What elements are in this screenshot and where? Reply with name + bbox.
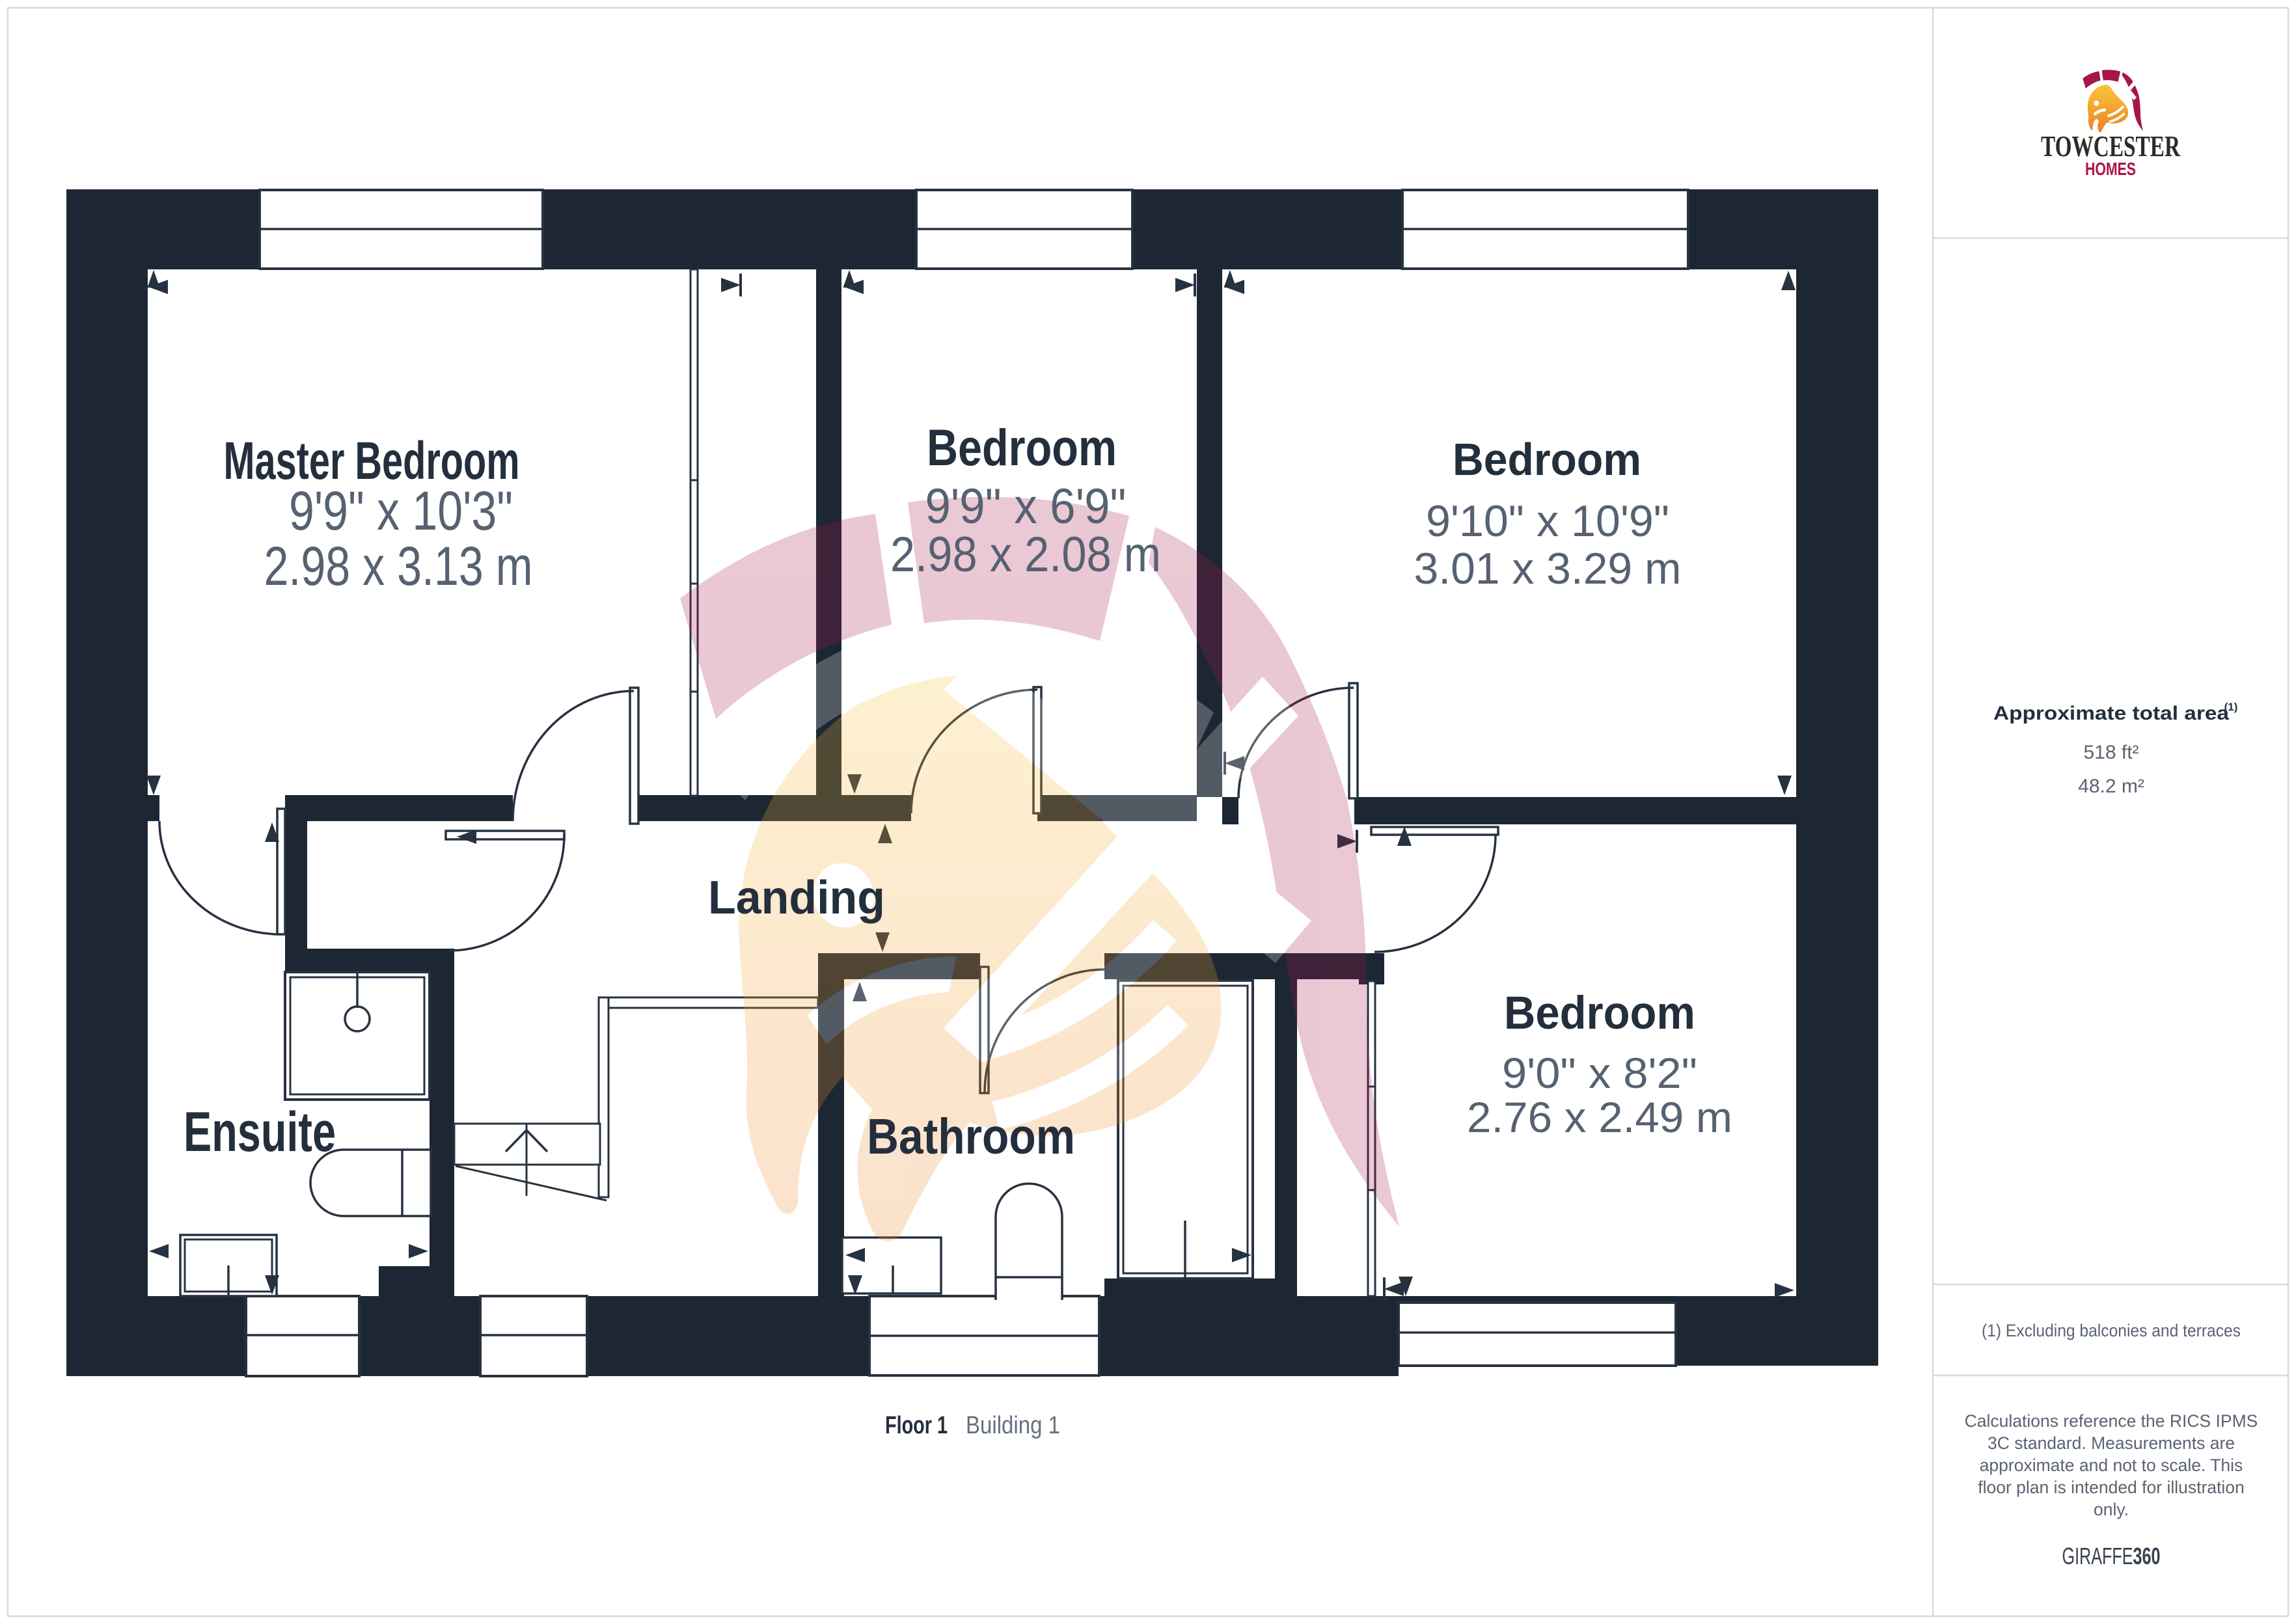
svg-text:9'9" x 10'3": 9'9" x 10'3" (289, 480, 513, 541)
svg-text:2.76 x 2.49 m: 2.76 x 2.49 m (1467, 1093, 1732, 1141)
svg-text:only.: only. (2094, 1500, 2129, 1519)
svg-text:floor plan is intended for ill: floor plan is intended for illustration (1978, 1478, 2245, 1497)
svg-text:Calculations reference the RIC: Calculations reference the RICS IPMS (1965, 1411, 2258, 1431)
svg-text:9'10" x 10'9": 9'10" x 10'9" (1426, 496, 1669, 546)
svg-text:Bedroom: Bedroom (1504, 988, 1695, 1039)
svg-text:3C standard. Measurements are: 3C standard. Measurements are (1988, 1433, 2235, 1453)
svg-text:(1): (1) (2224, 701, 2238, 713)
svg-text:Landing: Landing (708, 872, 885, 924)
svg-text:approximate and not to scale.: approximate and not to scale. This (1980, 1455, 2243, 1475)
svg-text:GIRAFFE360: GIRAFFE360 (2062, 1543, 2161, 1569)
svg-text:2.98 x 3.13 m: 2.98 x 3.13 m (264, 535, 533, 597)
svg-text:TOWCESTER: TOWCESTER (2041, 129, 2181, 163)
svg-text:Approximate total area: Approximate total area (1993, 703, 2229, 724)
svg-text:48.2 m²: 48.2 m² (2078, 776, 2144, 797)
svg-text:Floor 1: Floor 1 (885, 1412, 948, 1439)
svg-text:2.98 x 2.08 m: 2.98 x 2.08 m (890, 527, 1161, 582)
svg-text:(1) Excluding balconies and te: (1) Excluding balconies and terraces (1982, 1321, 2241, 1340)
svg-text:3.01 x 3.29 m: 3.01 x 3.29 m (1414, 544, 1682, 593)
svg-text:Building 1: Building 1 (966, 1412, 1060, 1439)
svg-text:Bedroom: Bedroom (927, 418, 1117, 476)
svg-text:HOMES: HOMES (2085, 159, 2136, 179)
svg-text:Bathroom: Bathroom (867, 1109, 1075, 1165)
svg-text:9'0" x 8'2": 9'0" x 8'2" (1502, 1049, 1697, 1097)
svg-text:Ensuite: Ensuite (184, 1101, 336, 1163)
svg-text:9'9" x 6'9": 9'9" x 6'9" (925, 479, 1127, 534)
svg-text:518 ft²: 518 ft² (2083, 742, 2139, 763)
svg-text:Bedroom: Bedroom (1453, 434, 1641, 485)
